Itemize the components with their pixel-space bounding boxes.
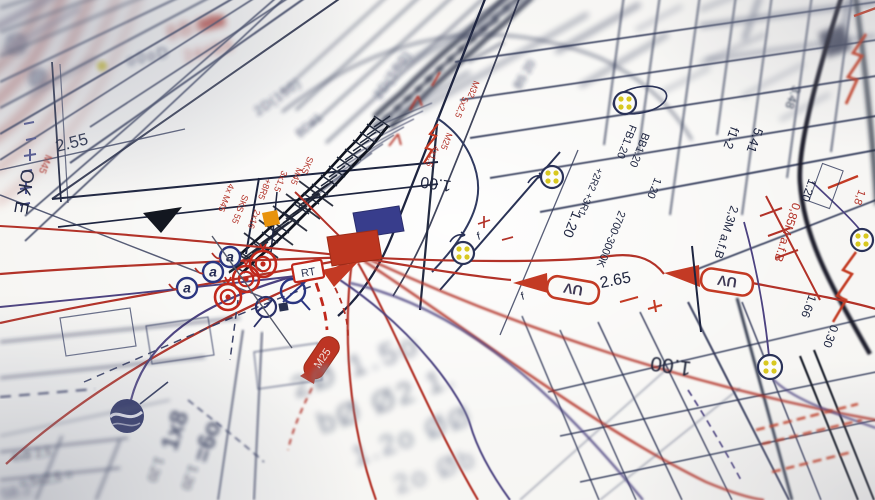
svg-text:RT: RT	[300, 266, 317, 280]
svg-text:a: a	[183, 280, 191, 296]
svg-text:a: a	[209, 264, 217, 280]
svg-text:UV: UV	[716, 272, 738, 291]
